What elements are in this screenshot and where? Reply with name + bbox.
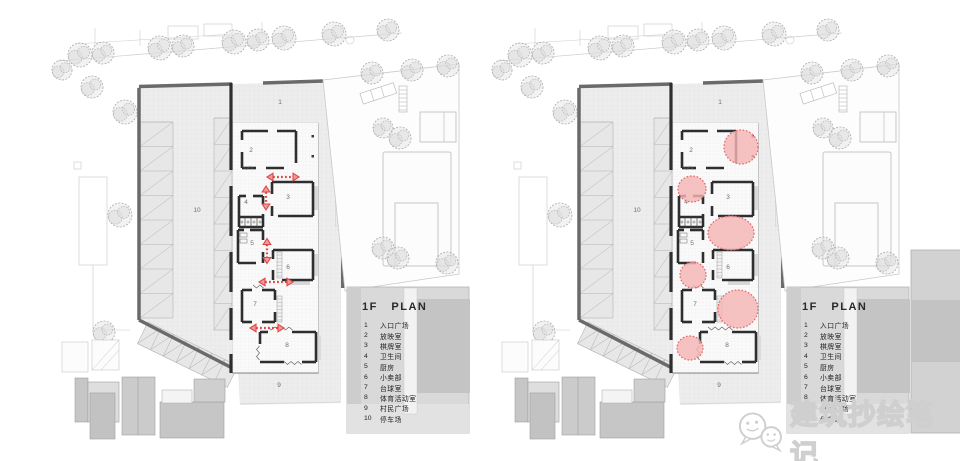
activity-bubble: [708, 216, 754, 250]
room-number-label: 10: [633, 207, 641, 214]
legend-item-number: 6: [800, 374, 820, 381]
tree-icon: [272, 26, 296, 50]
room-number-label: 8: [285, 342, 289, 349]
legend-item-number: 5: [800, 363, 820, 370]
legend-item: 10停车场: [360, 414, 472, 424]
legend-item: 8体育活动室: [360, 393, 472, 403]
tree-icon: [401, 59, 423, 81]
legend-item: 9村民广场: [360, 403, 472, 413]
activity-bubble: [678, 176, 706, 202]
tree-icon: [222, 30, 246, 54]
activity-bubble: [718, 290, 758, 328]
room-number-label: 5: [690, 240, 694, 247]
activity-bubble: [680, 262, 706, 288]
room-number-label: 4: [244, 199, 248, 206]
legend-item-number: 2: [800, 332, 820, 339]
legend-item-number: 4: [800, 353, 820, 360]
legend-item: 7台球室: [360, 382, 472, 392]
legend-item: 7台球室: [800, 382, 912, 392]
tree-icon: [377, 19, 399, 41]
east-neighbours: [763, 55, 899, 291]
tree-icon: [876, 252, 898, 274]
tree-icon: [841, 59, 863, 81]
legend-item-label: 放映室: [820, 331, 842, 341]
legend-item-label: 体育活动室: [380, 393, 416, 403]
tree-icon: [829, 127, 851, 149]
tree-icon: [877, 55, 899, 77]
legend-item-label: 卫生间: [380, 351, 402, 361]
tree-icon: [662, 30, 686, 54]
tree-icon: [548, 203, 572, 227]
room-number-label: 3: [726, 194, 730, 201]
legend-item-number: 3: [800, 342, 820, 349]
room-number-label: 10: [193, 207, 201, 214]
west-neighbours: [52, 60, 137, 343]
legend-item-number: 5: [360, 363, 380, 370]
legend-item-number: 4: [360, 353, 380, 360]
legend-item-number: 7: [360, 384, 380, 391]
tree-icon: [92, 42, 114, 64]
watermark: 建筑抄绘笔记: [736, 393, 960, 461]
legend-item: 2放映室: [360, 330, 472, 340]
tree-icon: [612, 35, 634, 57]
tree-icon: [687, 29, 709, 51]
room-number-label: 3: [286, 194, 290, 201]
tree-icon: [762, 22, 786, 46]
legend-item: 6小卖部: [800, 372, 912, 382]
tree-icon: [322, 22, 346, 46]
street-trees: [68, 19, 399, 67]
tree-icon: [113, 100, 137, 124]
room-number-label: 9: [277, 382, 281, 389]
legend-item: 4卫生间: [360, 351, 472, 361]
room-number-label: 2: [249, 147, 253, 154]
west-neighbours: [492, 60, 577, 343]
legend-item-label: 停车场: [380, 414, 402, 424]
legend-item-label: 棋牌室: [380, 341, 402, 351]
legend-item: 3棋牌室: [800, 341, 912, 351]
tree-icon: [521, 76, 543, 98]
legend-item-label: 入口广场: [380, 320, 409, 330]
legend-item-label: 台球室: [380, 383, 402, 393]
legend-item-label: 厨房: [380, 362, 395, 372]
tree-icon: [553, 100, 577, 124]
legend-item-number: 7: [800, 384, 820, 391]
tree-icon: [148, 36, 172, 60]
tree-icon: [52, 60, 72, 80]
legend-item-number: 1: [800, 322, 820, 329]
stair-icon: [399, 86, 407, 112]
legend-items: 1入口广场2放映室3棋牌室4卫生间5厨房6小卖部7台球室8体育活动室9村民广场1…: [360, 320, 472, 424]
tree-icon: [588, 36, 612, 60]
legend-item-label: 放映室: [380, 331, 402, 341]
room-number-label: 6: [286, 264, 290, 271]
legend-item-number: 6: [360, 374, 380, 381]
tree-icon: [387, 247, 409, 269]
legend-title: 1F PLAN: [362, 301, 472, 313]
activity-bubble: [724, 130, 758, 164]
legend-item-label: 棋牌室: [820, 341, 842, 351]
room-number-label: 5: [250, 240, 254, 247]
tree-icon: [68, 43, 92, 67]
legend-item-number: 1: [360, 322, 380, 329]
tree-icon: [532, 42, 554, 64]
legend-item-label: 入口广场: [820, 320, 849, 330]
room-number-label: 1: [718, 99, 722, 106]
activity-bubble: [677, 336, 703, 360]
tree-icon: [172, 35, 194, 57]
legend-item-number: 2: [360, 332, 380, 339]
room-number-label: 7: [693, 301, 697, 308]
watermark-text: 建筑抄绘笔记: [790, 393, 960, 461]
tree-icon: [361, 62, 383, 84]
community-building: [231, 83, 321, 374]
screenshot-canvas: 12345678910 12345678910 1F PLAN 1入口广场2放映…: [0, 0, 960, 461]
legend-item-label: 小卖部: [380, 372, 402, 382]
room-number-label: 6: [726, 264, 730, 271]
legend-item-number: 9: [360, 405, 380, 412]
room-number-label: 9: [717, 382, 721, 389]
street-trees: [508, 19, 839, 67]
legend-item-label: 台球室: [820, 383, 842, 393]
legend-item-number: 8: [360, 394, 380, 401]
legend-title: 1F PLAN: [802, 301, 912, 313]
tree-icon: [827, 247, 849, 269]
legend-item: 6小卖部: [360, 372, 472, 382]
room-number-label: 7: [253, 301, 257, 308]
tree-icon: [389, 127, 411, 149]
tree-icon: [247, 29, 269, 51]
legend-item: 2放映室: [800, 330, 912, 340]
east-neighbours: [323, 55, 459, 291]
tree-icon: [817, 19, 839, 41]
room-number-label: 2: [689, 147, 693, 154]
legend-item-label: 村民广场: [380, 403, 409, 413]
stair-icon: [839, 86, 847, 112]
room-number-label: 8: [725, 342, 729, 349]
legend-item-number: 3: [360, 342, 380, 349]
tree-icon: [508, 43, 532, 67]
legend-item-label: 厨房: [820, 362, 835, 372]
tree-icon: [81, 76, 103, 98]
legend-item-number: 10: [360, 415, 380, 422]
tree-icon: [108, 203, 132, 227]
legend-item: 5厨房: [360, 362, 472, 372]
legend-left: 1F PLAN 1入口广场2放映室3棋牌室4卫生间5厨房6小卖部7台球室8体育活…: [360, 301, 472, 424]
tree-icon: [712, 26, 736, 50]
legend-item: 1入口广场: [800, 320, 912, 330]
tree-icon: [492, 60, 512, 80]
tree-icon: [801, 62, 823, 84]
legend-item: 1入口广场: [360, 320, 472, 330]
room-number-label: 1: [278, 99, 282, 106]
legend-item: 5厨房: [800, 362, 912, 372]
legend-item: 4卫生间: [800, 351, 912, 361]
legend-item: 3棋牌室: [360, 341, 472, 351]
wechat-icon: [736, 408, 785, 458]
legend-item-label: 小卖部: [820, 372, 842, 382]
legend-item-label: 卫生间: [820, 351, 842, 361]
